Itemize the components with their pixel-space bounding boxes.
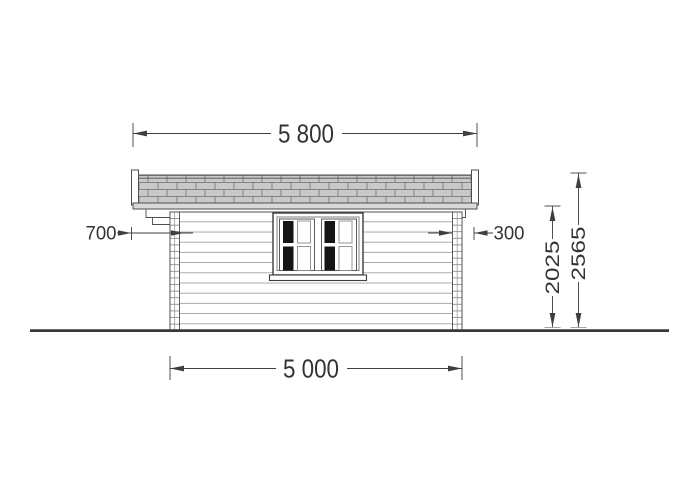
window-pane-dark: [325, 221, 336, 243]
arrow-left-icon: [475, 230, 488, 235]
window-pane-light: [298, 221, 311, 243]
window-sill: [270, 275, 367, 281]
roof-shingles: [139, 175, 472, 203]
arrow-up-icon: [550, 207, 556, 221]
window-pane-dark: [283, 247, 294, 271]
arrow-right-icon: [448, 366, 462, 372]
roof-trim-left: [132, 170, 139, 205]
dim-base-width: 5 000: [170, 354, 462, 384]
technical-drawing: 5 800 5 000 700 300: [0, 0, 700, 495]
eave-bracket-right: [462, 209, 466, 218]
arrow-down-icon: [576, 313, 582, 327]
arrow-right-icon: [118, 230, 131, 235]
house: [132, 170, 479, 330]
dim-eave-height-label: 2025: [543, 241, 564, 295]
roof-fascia: [133, 203, 477, 209]
roof-trim-right: [472, 170, 479, 205]
window-pane-dark: [283, 221, 294, 243]
arrow-left-icon: [170, 366, 184, 372]
arrow-up-icon: [576, 174, 582, 188]
arrow-left-icon: [133, 131, 147, 137]
dim-overhang-left-label: 700: [86, 224, 117, 245]
window-pane-light: [339, 247, 352, 271]
elevation-drawing: 5 800 5 000 700 300: [0, 0, 700, 495]
dim-roof-width: 5 800: [133, 119, 477, 149]
dim-eave-height: 2025: [543, 206, 564, 328]
arrow-right-icon: [463, 131, 477, 137]
eave-bracket-left: [146, 209, 170, 225]
window-pane-light: [339, 221, 352, 243]
window-pane-light: [298, 247, 311, 271]
dim-ridge-height: 2565: [569, 173, 590, 328]
arrow-down-icon: [550, 313, 556, 327]
window: [270, 213, 367, 281]
dim-base-width-label: 5 000: [283, 354, 339, 384]
window-pane-dark: [325, 247, 336, 271]
dim-overhang-right-label: 300: [494, 224, 525, 245]
dim-roof-width-label: 5 800: [278, 119, 334, 149]
dim-ridge-height-label: 2565: [569, 227, 590, 281]
